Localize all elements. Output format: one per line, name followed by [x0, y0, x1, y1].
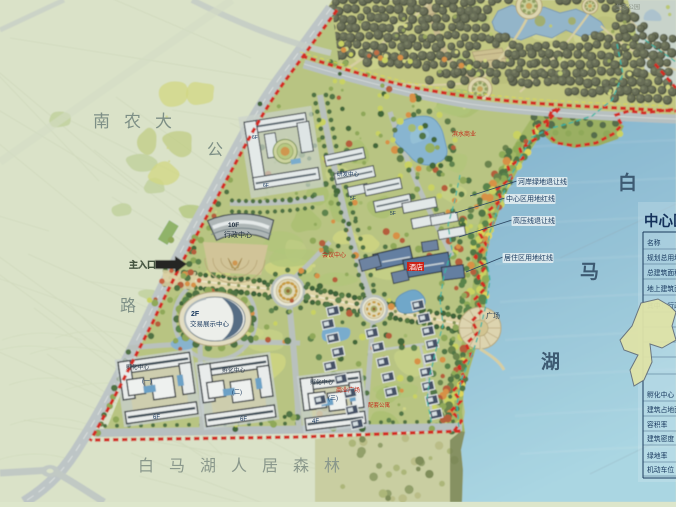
svg-text:4F: 4F — [312, 419, 319, 425]
svg-text:孵化中心: 孵化中心 — [126, 363, 149, 371]
svg-text:马: 马 — [580, 262, 599, 283]
svg-text:行政中心: 行政中心 — [224, 230, 252, 239]
svg-text:孵化中心: 孵化中心 — [647, 390, 674, 399]
svg-text:高压线退让线: 高压线退让线 — [513, 216, 555, 225]
svg-text:2F: 2F — [191, 311, 200, 318]
svg-text:湖: 湖 — [541, 351, 560, 373]
svg-text:(二): (二) — [232, 390, 242, 396]
svg-text:中心区用地红线: 中心区用地红线 — [506, 194, 555, 203]
svg-text:配套公寓: 配套公寓 — [368, 401, 391, 409]
svg-text:机动车位: 机动车位 — [647, 465, 674, 474]
svg-text:(一): (一) — [142, 379, 152, 385]
svg-text:中心区经: 中心区经 — [644, 212, 676, 230]
svg-text:公: 公 — [207, 142, 223, 159]
svg-text:商业广场: 商业广场 — [336, 386, 360, 394]
svg-text:规划总用地: 规划总用地 — [647, 253, 676, 262]
svg-text:白马湖人居森林: 白马湖人居森林 — [138, 457, 355, 475]
svg-text:(三): (三) — [328, 395, 338, 402]
svg-text:孵化中心: 孵化中心 — [222, 366, 245, 374]
svg-text:居住区用地红线: 居住区用地红线 — [504, 253, 553, 262]
svg-text:孵化中心: 孵化中心 — [310, 378, 333, 386]
svg-text:6F: 6F — [252, 135, 258, 141]
svg-text:6F: 6F — [263, 183, 269, 189]
svg-text:主入口: 主入口 — [129, 259, 156, 270]
svg-text:总建筑面积: 总建筑面积 — [647, 268, 676, 277]
svg-text:6F: 6F — [240, 417, 247, 423]
svg-text:生态公园: 生态公园 — [616, 3, 640, 11]
svg-text:容积率: 容积率 — [647, 420, 668, 429]
svg-text:河岸绿地退让线: 河岸绿地退让线 — [518, 177, 567, 186]
svg-text:5F: 5F — [390, 211, 396, 217]
svg-text:名称: 名称 — [647, 238, 661, 247]
svg-text:研发中心: 研发中心 — [337, 170, 360, 178]
svg-text:白: 白 — [618, 171, 637, 194]
svg-text:广场: 广场 — [486, 311, 500, 320]
svg-text:路: 路 — [120, 297, 136, 315]
svg-text:滨水商业: 滨水商业 — [452, 130, 476, 138]
svg-text:地上建筑面积: 地上建筑面积 — [647, 284, 676, 293]
svg-text:会议中心: 会议中心 — [322, 251, 346, 259]
svg-text:建筑密度: 建筑密度 — [647, 434, 674, 443]
svg-text:5F: 5F — [350, 196, 356, 202]
svg-text:建筑占地面: 建筑占地面 — [647, 405, 676, 414]
svg-text:酒店: 酒店 — [409, 263, 423, 272]
svg-text:南农大: 南农大 — [93, 112, 186, 131]
svg-text:交易展示中心: 交易展示中心 — [190, 319, 230, 328]
svg-text:10F: 10F — [228, 222, 239, 229]
svg-text:6F: 6F — [153, 415, 160, 421]
svg-text:绿地率: 绿地率 — [647, 451, 668, 460]
